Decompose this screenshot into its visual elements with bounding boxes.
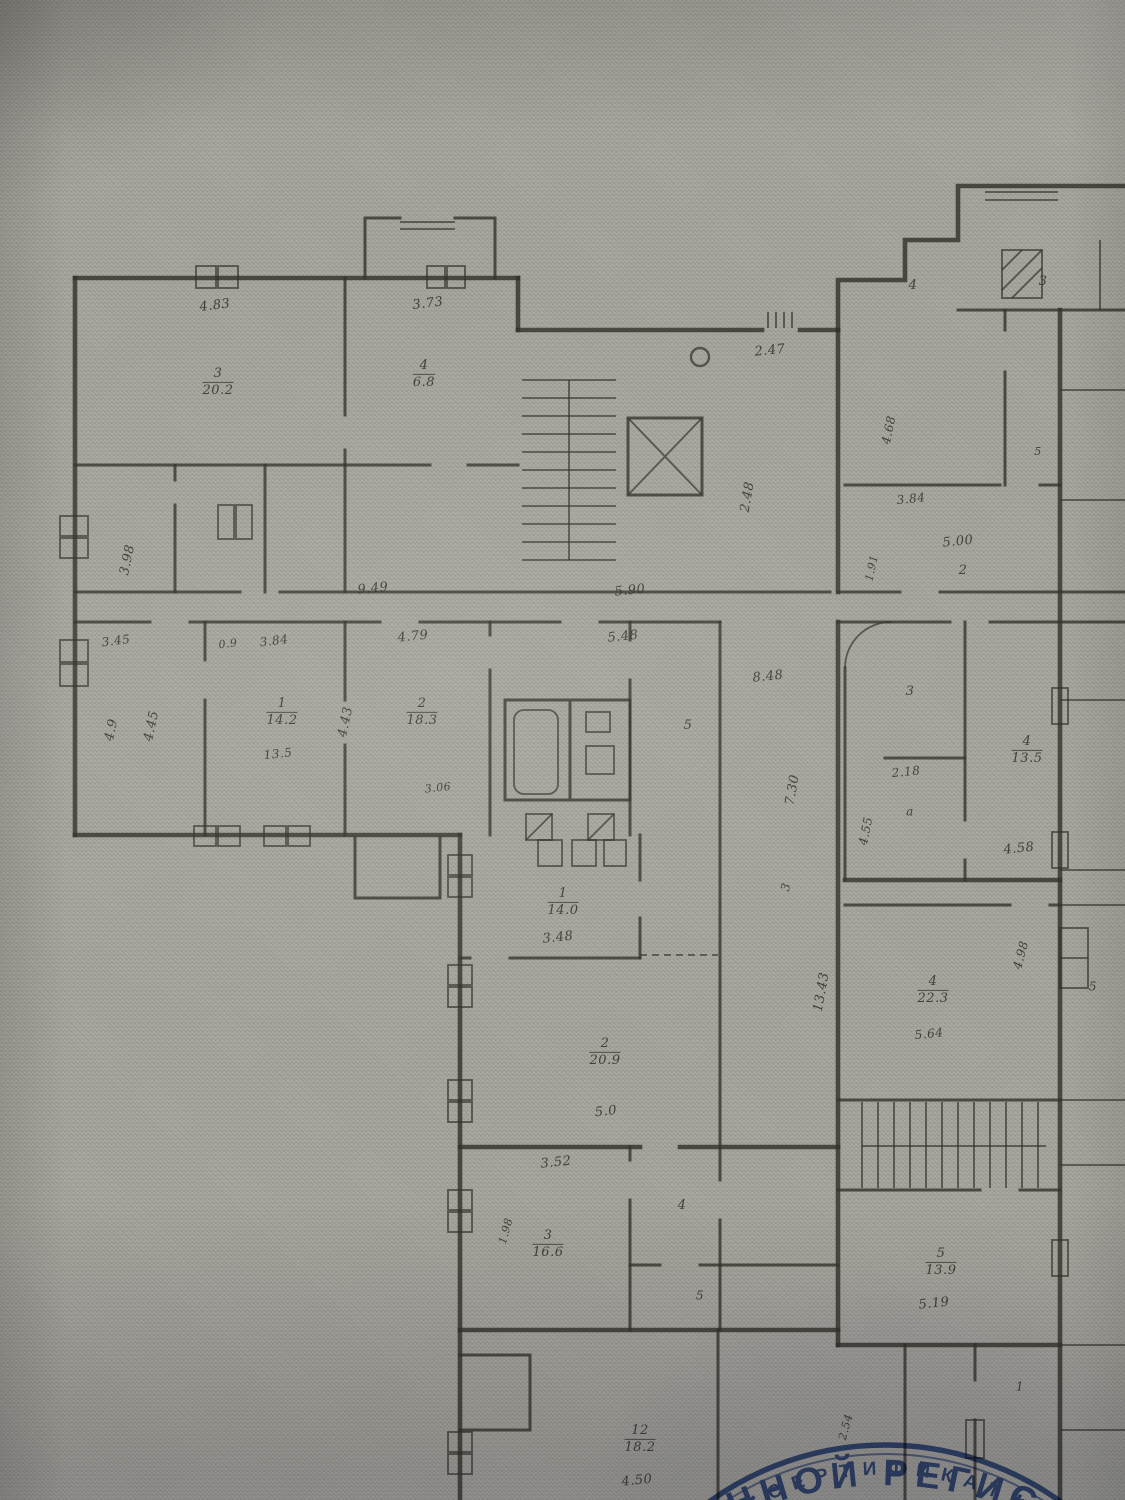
- registration-stamp: ✱ С Е Р Т И Ф И К А Т ✱ ННОЙ РЕГИС: [0, 0, 1125, 1500]
- scanned-floor-plan-photo: 4.833.73320.246.83.983.450.93.849.495.90…: [0, 0, 1125, 1500]
